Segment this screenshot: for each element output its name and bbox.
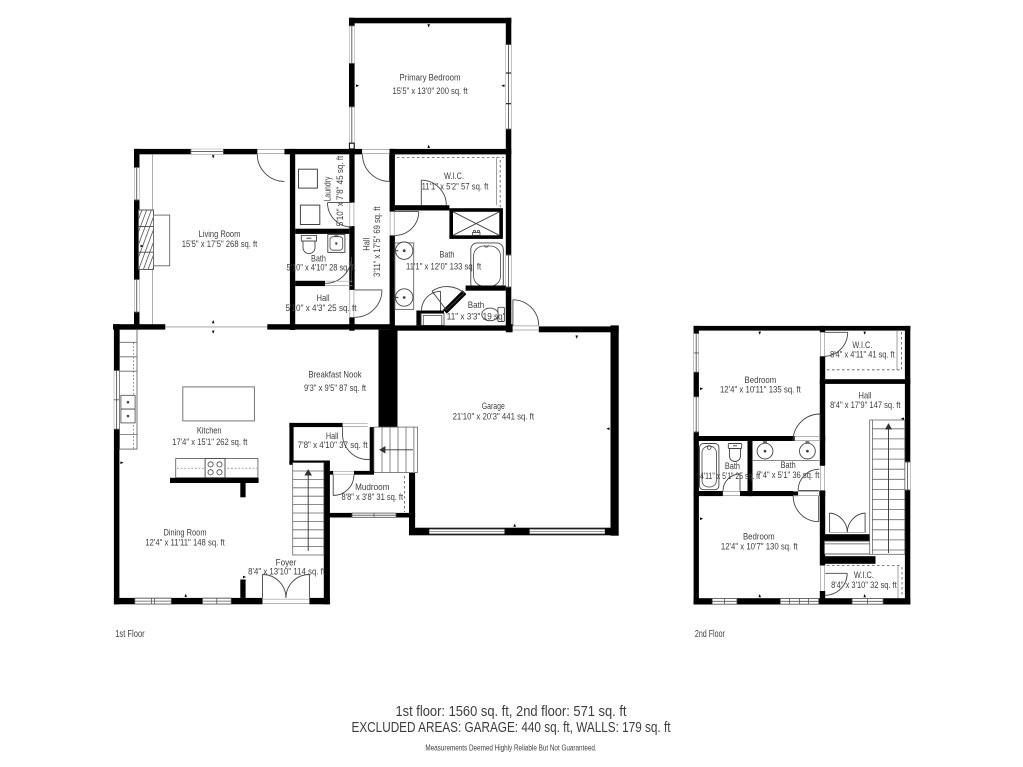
svg-text:Kitchen: Kitchen <box>197 426 222 437</box>
svg-text:Bath: Bath <box>440 249 455 260</box>
svg-text:7'4" x 5'1" 36 sq. ft: 7'4" x 5'1" 36 sq. ft <box>757 470 820 481</box>
svg-text:3'11" x 17'5" 69 sq. ft: 3'11" x 17'5" 69 sq. ft <box>372 206 383 277</box>
svg-text:5'10" x 7'8" 45 sq. ft: 5'10" x 7'8" 45 sq. ft <box>335 155 346 226</box>
svg-text:8'8" x 3'8" 31 sq. ft: 8'8" x 3'8" 31 sq. ft <box>342 492 404 503</box>
svg-text:8'4" x 13'10" 114 sq. ft: 8'4" x 13'10" 114 sq. ft <box>248 566 325 577</box>
svg-text:8'4" x 3'10" 32 sq. ft: 8'4" x 3'10" 32 sq. ft <box>831 580 897 591</box>
svg-text:1st floor: 1560 sq. ft, 2nd fl: 1st floor: 1560 sq. ft, 2nd floor: 571 s… <box>396 704 627 720</box>
svg-text:17'4" x 15'1" 262 sq. ft: 17'4" x 15'1" 262 sq. ft <box>172 437 247 448</box>
svg-text:11'1" x 5'2" 57 sq. ft: 11'1" x 5'2" 57 sq. ft <box>422 181 489 192</box>
svg-text:4'11" x 5'1" 25 sq. ft: 4'11" x 5'1" 25 sq. ft <box>700 471 760 482</box>
svg-text:1st Floor: 1st Floor <box>115 628 145 640</box>
svg-text:7'8" x 4'10" 37 sq. ft: 7'8" x 4'10" 37 sq. ft <box>298 440 368 451</box>
svg-text:21'10" x 20'3" 441 sq. ft: 21'10" x 20'3" 441 sq. ft <box>453 411 535 422</box>
svg-text:Bath: Bath <box>468 300 485 311</box>
svg-text:8'4" x 4'11" 41 sq. ft: 8'4" x 4'11" 41 sq. ft <box>830 349 895 360</box>
svg-text:EXCLUDED AREAS: GARAGE: 440 sq: EXCLUDED AREAS: GARAGE: 440 sq. ft, WALL… <box>352 720 671 736</box>
svg-text:8'4" x 17'9" 147 sq. ft: 8'4" x 17'9" 147 sq. ft <box>830 400 901 411</box>
svg-text:5'10" x 4'10" 28 sq. ft: 5'10" x 4'10" 28 sq. ft <box>287 262 356 273</box>
svg-text:15'5" x 17'5" 268 sq. ft: 15'5" x 17'5" 268 sq. ft <box>182 239 258 250</box>
svg-text:12'4" x 10'7" 130 sq. ft: 12'4" x 10'7" 130 sq. ft <box>721 542 798 553</box>
svg-text:Breakfast Nook: Breakfast Nook <box>308 370 361 381</box>
svg-text:2nd Floor: 2nd Floor <box>695 628 725 640</box>
svg-text:9'3" x 9'5" 87 sq. ft: 9'3" x 9'5" 87 sq. ft <box>304 383 366 394</box>
svg-text:Garage: Garage <box>482 401 505 412</box>
svg-text:Primary Bedroom: Primary Bedroom <box>400 73 461 84</box>
svg-text:W.I.C.: W.I.C. <box>444 171 464 182</box>
svg-text:5'10" x 4'3" 25 sq. ft: 5'10" x 4'3" 25 sq. ft <box>286 303 357 314</box>
svg-text:Laundry: Laundry <box>323 176 334 201</box>
svg-text:11" x 3'3" 19 sq': 11" x 3'3" 19 sq' <box>447 312 505 323</box>
svg-text:11'1" x 12'0" 133 sq. ft: 11'1" x 12'0" 133 sq. ft <box>406 261 481 272</box>
svg-text:Dining Room: Dining Room <box>163 527 206 538</box>
svg-text:15'5" x 13'0" 200 sq. ft: 15'5" x 13'0" 200 sq. ft <box>393 86 468 97</box>
svg-text:12'4" x 10'11" 135 sq. ft: 12'4" x 10'11" 135 sq. ft <box>720 385 801 396</box>
svg-text:12'4" x 11'11" 148 sq. ft: 12'4" x 11'11" 148 sq. ft <box>145 538 225 549</box>
svg-text:Measurements Deemed Highly Rel: Measurements Deemed Highly Reliable But … <box>425 743 596 752</box>
svg-text:Hall: Hall <box>361 238 372 251</box>
